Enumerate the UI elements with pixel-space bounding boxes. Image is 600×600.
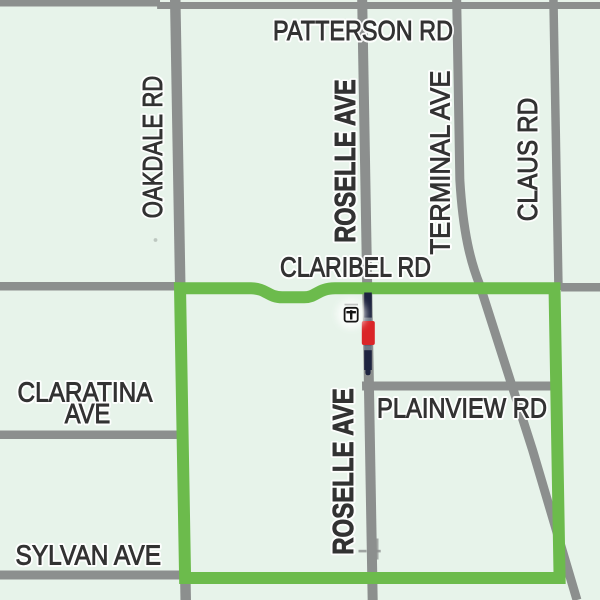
svg-text:PATTERSON RD: PATTERSON RD <box>273 15 453 46</box>
svg-text:AVE: AVE <box>65 398 111 429</box>
svg-text:ROSELLE AVE: ROSELLE AVE <box>330 79 362 243</box>
svg-text:PLAINVIEW RD: PLAINVIEW RD <box>377 393 547 424</box>
svg-text:SYLVAN AVE: SYLVAN AVE <box>16 540 162 571</box>
svg-text:OAKDALE RD: OAKDALE RD <box>137 76 168 219</box>
svg-text:CLAUS RD: CLAUS RD <box>512 98 543 222</box>
svg-text:CLARIBEL RD: CLARIBEL RD <box>280 252 431 283</box>
svg-text:ROSELLE AVE: ROSELLE AVE <box>328 388 360 555</box>
svg-text:TERMINAL AVE: TERMINAL AVE <box>425 71 456 255</box>
